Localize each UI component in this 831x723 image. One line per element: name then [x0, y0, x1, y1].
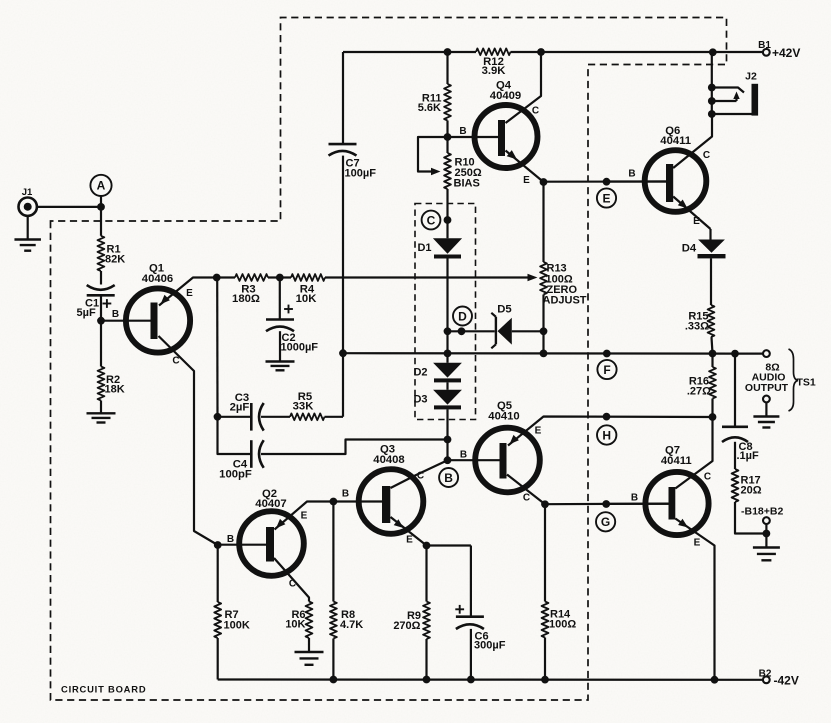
- svg-text:C: C: [289, 579, 296, 590]
- svg-text:ADJUST: ADJUST: [543, 295, 587, 307]
- svg-text:40410: 40410: [488, 411, 519, 423]
- svg-text:B1: B1: [758, 40, 771, 51]
- svg-text:E: E: [602, 191, 610, 205]
- svg-text:D3: D3: [413, 394, 427, 406]
- svg-text:E: E: [693, 216, 700, 227]
- svg-text:H: H: [602, 428, 611, 442]
- svg-text:D1: D1: [417, 242, 431, 254]
- svg-text:TS1: TS1: [797, 377, 816, 389]
- svg-text:270Ω: 270Ω: [393, 620, 420, 632]
- svg-text:10K: 10K: [285, 619, 305, 631]
- svg-text:-42V: -42V: [774, 674, 799, 688]
- svg-text:B2: B2: [759, 669, 772, 680]
- svg-text:D5: D5: [497, 304, 511, 316]
- svg-text:C: C: [417, 471, 424, 482]
- svg-text:C: C: [172, 356, 179, 367]
- svg-text:C: C: [704, 472, 711, 483]
- svg-text:5.6K: 5.6K: [418, 102, 441, 114]
- svg-text:C: C: [523, 493, 530, 504]
- svg-text:D2: D2: [413, 367, 427, 379]
- svg-text:100pF: 100pF: [219, 469, 252, 481]
- svg-text:1000µF: 1000µF: [281, 342, 319, 354]
- svg-text:18K: 18K: [105, 384, 125, 396]
- svg-text:33K: 33K: [293, 401, 315, 413]
- svg-text:C: C: [532, 106, 539, 117]
- svg-text:E: E: [694, 538, 701, 549]
- svg-text:OUTPUT: OUTPUT: [745, 382, 789, 394]
- svg-text:BIAS: BIAS: [454, 178, 480, 190]
- svg-text:40408: 40408: [373, 454, 404, 466]
- svg-text:B: B: [628, 169, 635, 180]
- svg-text:B: B: [631, 493, 638, 504]
- svg-text:B: B: [459, 126, 466, 137]
- svg-text:C: C: [703, 150, 710, 161]
- svg-text:300µF: 300µF: [474, 640, 506, 652]
- svg-text:40411: 40411: [661, 455, 692, 467]
- svg-text:F: F: [603, 363, 610, 377]
- svg-text:10K: 10K: [296, 293, 318, 305]
- svg-text:40406: 40406: [142, 273, 173, 285]
- svg-text:E: E: [535, 426, 542, 437]
- svg-text:4.7K: 4.7K: [340, 619, 363, 631]
- svg-text:C: C: [427, 213, 436, 227]
- svg-text:J2: J2: [745, 71, 757, 83]
- svg-text:G: G: [601, 515, 610, 529]
- svg-text:.33Ω: .33Ω: [685, 321, 709, 333]
- svg-text:D4: D4: [682, 243, 697, 255]
- svg-text:180Ω: 180Ω: [232, 293, 260, 305]
- svg-text:82K: 82K: [105, 254, 125, 266]
- svg-text:A: A: [97, 179, 106, 193]
- svg-text:CIRCUIT BOARD: CIRCUIT BOARD: [61, 684, 146, 695]
- svg-text:+42V: +42V: [772, 46, 800, 60]
- svg-text:D: D: [458, 309, 467, 323]
- svg-text:E: E: [523, 175, 530, 186]
- svg-text:100µF: 100µF: [345, 168, 377, 180]
- svg-text:B: B: [444, 471, 453, 485]
- svg-text:40407: 40407: [255, 498, 286, 510]
- svg-text:J1: J1: [22, 187, 33, 198]
- svg-text:40409: 40409: [490, 90, 521, 102]
- svg-text:B: B: [112, 309, 119, 320]
- svg-text:-B18+B2: -B18+B2: [741, 506, 783, 518]
- svg-text:100Ω: 100Ω: [549, 619, 576, 631]
- svg-text:B: B: [460, 450, 467, 461]
- svg-text:100K: 100K: [224, 620, 250, 632]
- svg-text:E: E: [186, 288, 193, 299]
- svg-text:3.9K: 3.9K: [482, 65, 507, 77]
- svg-text:E: E: [301, 511, 308, 522]
- svg-text:20Ω: 20Ω: [741, 485, 762, 497]
- svg-text:40411: 40411: [660, 135, 691, 147]
- svg-text:.1µF: .1µF: [737, 450, 760, 462]
- svg-text:E: E: [406, 535, 413, 546]
- svg-text:.27Ω: .27Ω: [687, 386, 711, 398]
- svg-text:B: B: [227, 534, 234, 545]
- svg-text:2µF: 2µF: [230, 402, 250, 414]
- svg-text:B: B: [342, 489, 349, 500]
- svg-text:5µF: 5µF: [77, 307, 96, 319]
